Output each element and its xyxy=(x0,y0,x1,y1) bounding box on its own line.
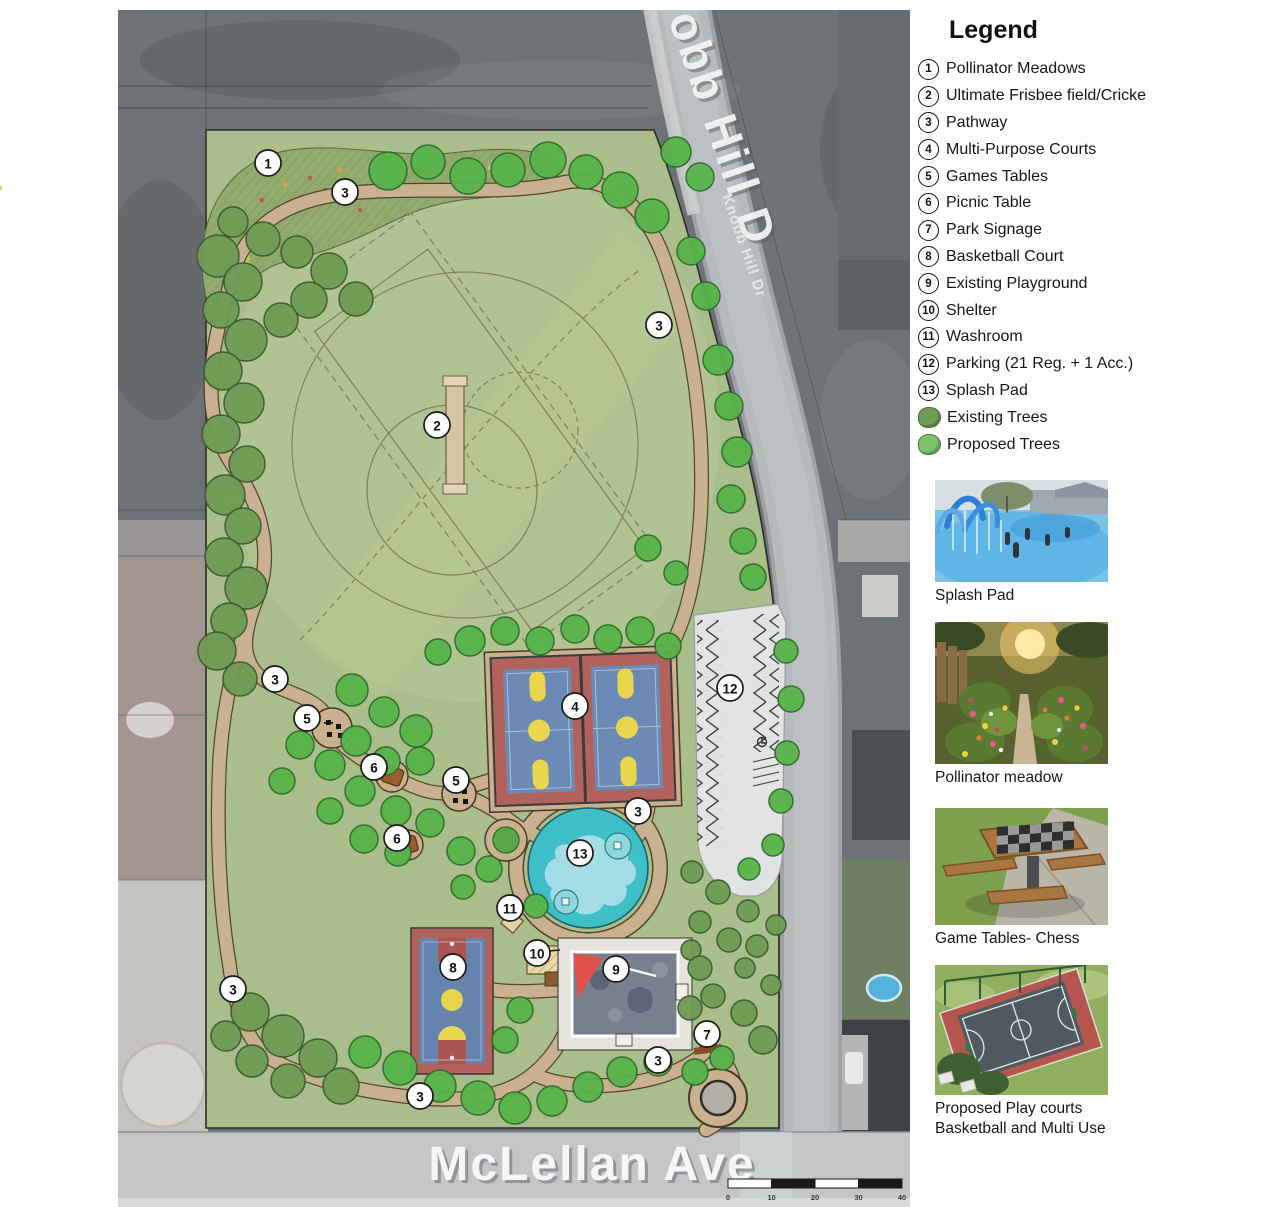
map-marker-7: 7 xyxy=(694,1021,720,1047)
pollinator-meadow-photo xyxy=(935,622,1108,764)
map-marker-10: 10 xyxy=(524,940,550,966)
proposed-tree xyxy=(769,789,793,813)
proposed-tree xyxy=(664,561,688,585)
svg-text:5: 5 xyxy=(303,712,311,727)
map-marker-1: 1 xyxy=(255,150,281,176)
existing-tree xyxy=(746,935,768,957)
pollinator-meadow-photo-card: Pollinator meadow xyxy=(935,622,1108,788)
proposed-tree xyxy=(425,639,451,665)
proposed-tree xyxy=(350,825,378,853)
existing-tree xyxy=(737,900,759,922)
proposed-tree xyxy=(455,626,485,656)
scale-tick: 0 xyxy=(726,1193,730,1202)
basketball-court xyxy=(411,928,493,1074)
legend-item-8: 8Basketball Court xyxy=(918,244,1146,271)
proposed-tree xyxy=(345,776,375,806)
game-tables-photo xyxy=(935,808,1108,925)
legend-item-6: 6Picnic Table xyxy=(918,190,1146,217)
proposed-tree xyxy=(762,834,784,856)
proposed-tree xyxy=(655,633,681,659)
legend-item-4: 4Multi-Purpose Courts xyxy=(918,136,1146,163)
proposed-tree xyxy=(607,1057,637,1087)
proposed-tree xyxy=(635,535,661,561)
existing-tree xyxy=(202,415,240,453)
legend-item-number: 4 xyxy=(918,139,939,160)
legend-item-number: 12 xyxy=(918,354,939,375)
existing-tree xyxy=(717,928,741,952)
legend-item-number: 7 xyxy=(918,220,939,241)
map-marker-3: 3 xyxy=(262,666,288,692)
existing-tree xyxy=(323,1068,359,1104)
legend-item-number: 2 xyxy=(918,86,939,107)
legend-item-number: 3 xyxy=(918,112,939,133)
proposed-tree xyxy=(315,750,345,780)
legend-item-number: 9 xyxy=(918,273,939,294)
map-marker-6: 6 xyxy=(384,825,410,851)
proposed-tree xyxy=(573,1072,603,1102)
proposed-tree xyxy=(406,747,434,775)
proposed-tree xyxy=(286,731,314,759)
svg-text:6: 6 xyxy=(393,832,401,847)
proposed-tree xyxy=(594,625,622,653)
existing-tree xyxy=(735,958,755,978)
play-courts-photo-card: Proposed Play courts Basketball and Mult… xyxy=(935,965,1108,1139)
proposed-tree xyxy=(451,875,475,899)
proposed-tree xyxy=(492,1027,518,1053)
tree-icon xyxy=(918,407,941,428)
proposed-tree xyxy=(778,686,804,712)
legend-item-label: Multi-Purpose Courts xyxy=(946,141,1096,159)
proposed-tree xyxy=(336,674,368,706)
proposed-tree xyxy=(774,639,798,663)
existing-tree xyxy=(223,662,257,696)
multi-purpose-courts xyxy=(484,646,681,813)
proposed-tree xyxy=(710,1046,734,1070)
proposed-tree xyxy=(730,528,756,554)
map-marker-3: 3 xyxy=(645,1047,671,1073)
legend-item-label: Ultimate Frisbee field/Cricke xyxy=(946,87,1146,105)
proposed-tree xyxy=(349,1036,381,1068)
proposed-tree xyxy=(369,697,399,727)
proposed-tree xyxy=(715,392,743,420)
map-marker-2: 2 xyxy=(424,412,450,438)
existing-tree xyxy=(264,303,298,337)
svg-text:4: 4 xyxy=(571,700,579,715)
existing-tree xyxy=(701,984,725,1008)
existing-tree xyxy=(766,915,786,935)
legend-list: 1Pollinator Meadows2Ultimate Frisbee fie… xyxy=(918,56,1146,458)
proposed-tree xyxy=(450,158,486,194)
legend-item-label: Existing Playground xyxy=(946,275,1087,293)
proposed-tree xyxy=(661,137,691,167)
proposed-tree xyxy=(738,858,760,880)
proposed-tree xyxy=(526,627,554,655)
existing-tree xyxy=(678,996,702,1020)
map-marker-9: 9 xyxy=(603,956,629,982)
legend-item-label: Basketball Court xyxy=(946,248,1063,266)
map-marker-6: 6 xyxy=(361,754,387,780)
proposed-tree xyxy=(341,726,371,756)
svg-text:7: 7 xyxy=(703,1028,711,1043)
legend-item-3: 3Pathway xyxy=(918,110,1146,137)
svg-text:3: 3 xyxy=(654,1054,662,1069)
photo-caption: Pollinator meadow xyxy=(935,768,1108,788)
scale-tick: 40 xyxy=(898,1193,906,1202)
svg-text:13: 13 xyxy=(572,847,588,862)
proposed-tree xyxy=(537,1086,567,1116)
map-marker-3: 3 xyxy=(220,976,246,1002)
proposed-tree xyxy=(722,437,752,467)
tree-icon xyxy=(918,434,941,455)
proposed-tree xyxy=(499,1092,531,1124)
proposed-tree xyxy=(381,796,411,826)
existing-tree xyxy=(271,1064,305,1098)
existing-playground xyxy=(558,938,692,1050)
legend-item-12: 12Parking (21 Reg. + 1 Acc.) xyxy=(918,351,1146,378)
legend-item-number: 13 xyxy=(918,380,939,401)
proposed-tree xyxy=(569,155,603,189)
legend-title: Legend xyxy=(949,16,1038,45)
map-marker-4: 4 xyxy=(562,693,588,719)
svg-text:9: 9 xyxy=(612,963,620,978)
proposed-tree xyxy=(416,809,444,837)
proposed-tree xyxy=(682,1059,708,1085)
splash-pad-photo-card: Splash Pad xyxy=(935,480,1108,606)
existing-tree xyxy=(262,1015,304,1057)
existing-tree xyxy=(681,861,703,883)
legend-item-number: 5 xyxy=(918,166,939,187)
map-marker-3: 3 xyxy=(332,179,358,205)
proposed-tree xyxy=(491,617,519,645)
legend-item-number: 10 xyxy=(918,300,939,321)
proposed-tree xyxy=(269,768,295,794)
proposed-tree xyxy=(447,837,475,865)
legend-item-label: Pollinator Meadows xyxy=(946,60,1086,78)
legend-item-number: 1 xyxy=(918,59,939,80)
existing-tree xyxy=(731,1000,757,1026)
map-marker-13: 13 xyxy=(567,840,593,866)
existing-tree xyxy=(688,956,712,980)
proposed-tree xyxy=(626,617,654,645)
svg-text:3: 3 xyxy=(416,1090,424,1105)
scale-tick: 20 xyxy=(811,1193,819,1202)
proposed-tree xyxy=(530,142,566,178)
svg-text:12: 12 xyxy=(722,682,737,697)
legend-item-label: Picnic Table xyxy=(946,194,1031,212)
svg-text:3: 3 xyxy=(271,673,279,688)
proposed-tree xyxy=(507,997,533,1023)
proposed-tree xyxy=(317,798,343,824)
svg-text:5: 5 xyxy=(452,774,460,789)
legend-item-label: Parking (21 Reg. + 1 Acc.) xyxy=(946,355,1133,373)
photo-caption: Splash Pad xyxy=(935,586,1108,606)
proposed-tree xyxy=(491,153,525,187)
map-marker-11: 11 xyxy=(497,895,523,921)
legend-item-10: 10Shelter xyxy=(918,297,1146,324)
legend-item-1: 1Pollinator Meadows xyxy=(918,56,1146,83)
map-marker-3: 3 xyxy=(625,798,651,824)
existing-tree xyxy=(236,1045,268,1077)
legend-item-9: 9Existing Playground xyxy=(918,270,1146,297)
svg-text:11: 11 xyxy=(503,902,518,917)
proposed-tree xyxy=(635,199,669,233)
map-marker-12: 12 xyxy=(717,675,743,701)
legend-item-label: Shelter xyxy=(946,302,997,320)
proposed-tree xyxy=(717,485,745,513)
proposed-tree xyxy=(383,1051,417,1085)
park-master-plan-page: 1332356564123131110893733 obb Hill D obb… xyxy=(0,0,1275,1207)
scale-tick: 10 xyxy=(767,1193,775,1202)
legend-item-2: 2Ultimate Frisbee field/Cricke xyxy=(918,83,1146,110)
legend-item-5: 5Games Tables xyxy=(918,163,1146,190)
svg-text:6: 6 xyxy=(370,761,378,776)
svg-text:3: 3 xyxy=(341,186,349,201)
existing-tree xyxy=(246,222,280,256)
legend-tree-item: Proposed Trees xyxy=(918,431,1146,458)
legend-item-13: 13Splash Pad xyxy=(918,378,1146,405)
existing-tree xyxy=(281,236,313,268)
existing-tree xyxy=(749,1026,777,1054)
svg-text:3: 3 xyxy=(634,805,642,820)
legend-tree-label: Existing Trees xyxy=(947,409,1047,427)
proposed-tree xyxy=(461,1081,495,1115)
proposed-tree xyxy=(369,152,407,190)
splash-pad-photo xyxy=(935,480,1108,582)
play-courts-photo xyxy=(935,965,1108,1095)
legend-item-label: Park Signage xyxy=(946,221,1042,239)
existing-tree xyxy=(706,880,730,904)
existing-tree xyxy=(218,207,248,237)
existing-tree xyxy=(211,1021,241,1051)
existing-tree xyxy=(339,282,373,316)
svg-text:1: 1 xyxy=(264,157,272,172)
proposed-tree xyxy=(677,237,705,265)
svg-text:3: 3 xyxy=(229,983,237,998)
legend-item-number: 6 xyxy=(918,193,939,214)
svg-text:3: 3 xyxy=(655,319,663,334)
mclellan-label: McLellan Ave xyxy=(428,1138,755,1191)
proposed-tree xyxy=(524,894,548,918)
legend-item-11: 11Washroom xyxy=(918,324,1146,351)
existing-tree xyxy=(689,911,711,933)
legend-panel: Legend 1Pollinator Meadows2Ultimate Fris… xyxy=(912,10,1274,472)
proposed-tree xyxy=(476,856,502,882)
cricket-pitch xyxy=(443,376,467,494)
map-marker-8: 8 xyxy=(440,954,466,980)
scale-tick: 30 xyxy=(854,1193,862,1202)
svg-text:2: 2 xyxy=(433,419,441,434)
proposed-tree xyxy=(561,615,589,643)
legend-tree-label: Proposed Trees xyxy=(947,436,1060,454)
existing-tree xyxy=(761,975,781,995)
photo-caption: Proposed Play courts Basketball and Mult… xyxy=(935,1099,1108,1139)
game-tables-photo-card: Game Tables- Chess xyxy=(935,808,1108,949)
legend-item-label: Pathway xyxy=(946,114,1007,132)
proposed-tree xyxy=(775,741,799,765)
legend-item-label: Washroom xyxy=(946,328,1023,346)
svg-text:10: 10 xyxy=(529,947,544,962)
legend-item-label: Games Tables xyxy=(946,168,1048,186)
map-marker-5: 5 xyxy=(443,767,469,793)
map-marker-3: 3 xyxy=(407,1083,433,1109)
map-marker-3: 3 xyxy=(646,312,672,338)
proposed-tree xyxy=(703,345,733,375)
map-marker-5: 5 xyxy=(294,705,320,731)
proposed-tree xyxy=(400,715,432,747)
proposed-tree xyxy=(740,564,766,590)
legend-item-7: 7Park Signage xyxy=(918,217,1146,244)
legend-item-number: 11 xyxy=(918,327,939,348)
photo-caption: Game Tables- Chess xyxy=(935,929,1108,949)
proposed-tree xyxy=(692,282,720,310)
proposed-tree xyxy=(602,172,638,208)
legend-tree-item: Existing Trees xyxy=(918,404,1146,431)
svg-text:8: 8 xyxy=(449,961,457,976)
legend-item-label: Splash Pad xyxy=(946,382,1028,400)
legend-item-number: 8 xyxy=(918,246,939,267)
proposed-tree xyxy=(411,145,445,179)
